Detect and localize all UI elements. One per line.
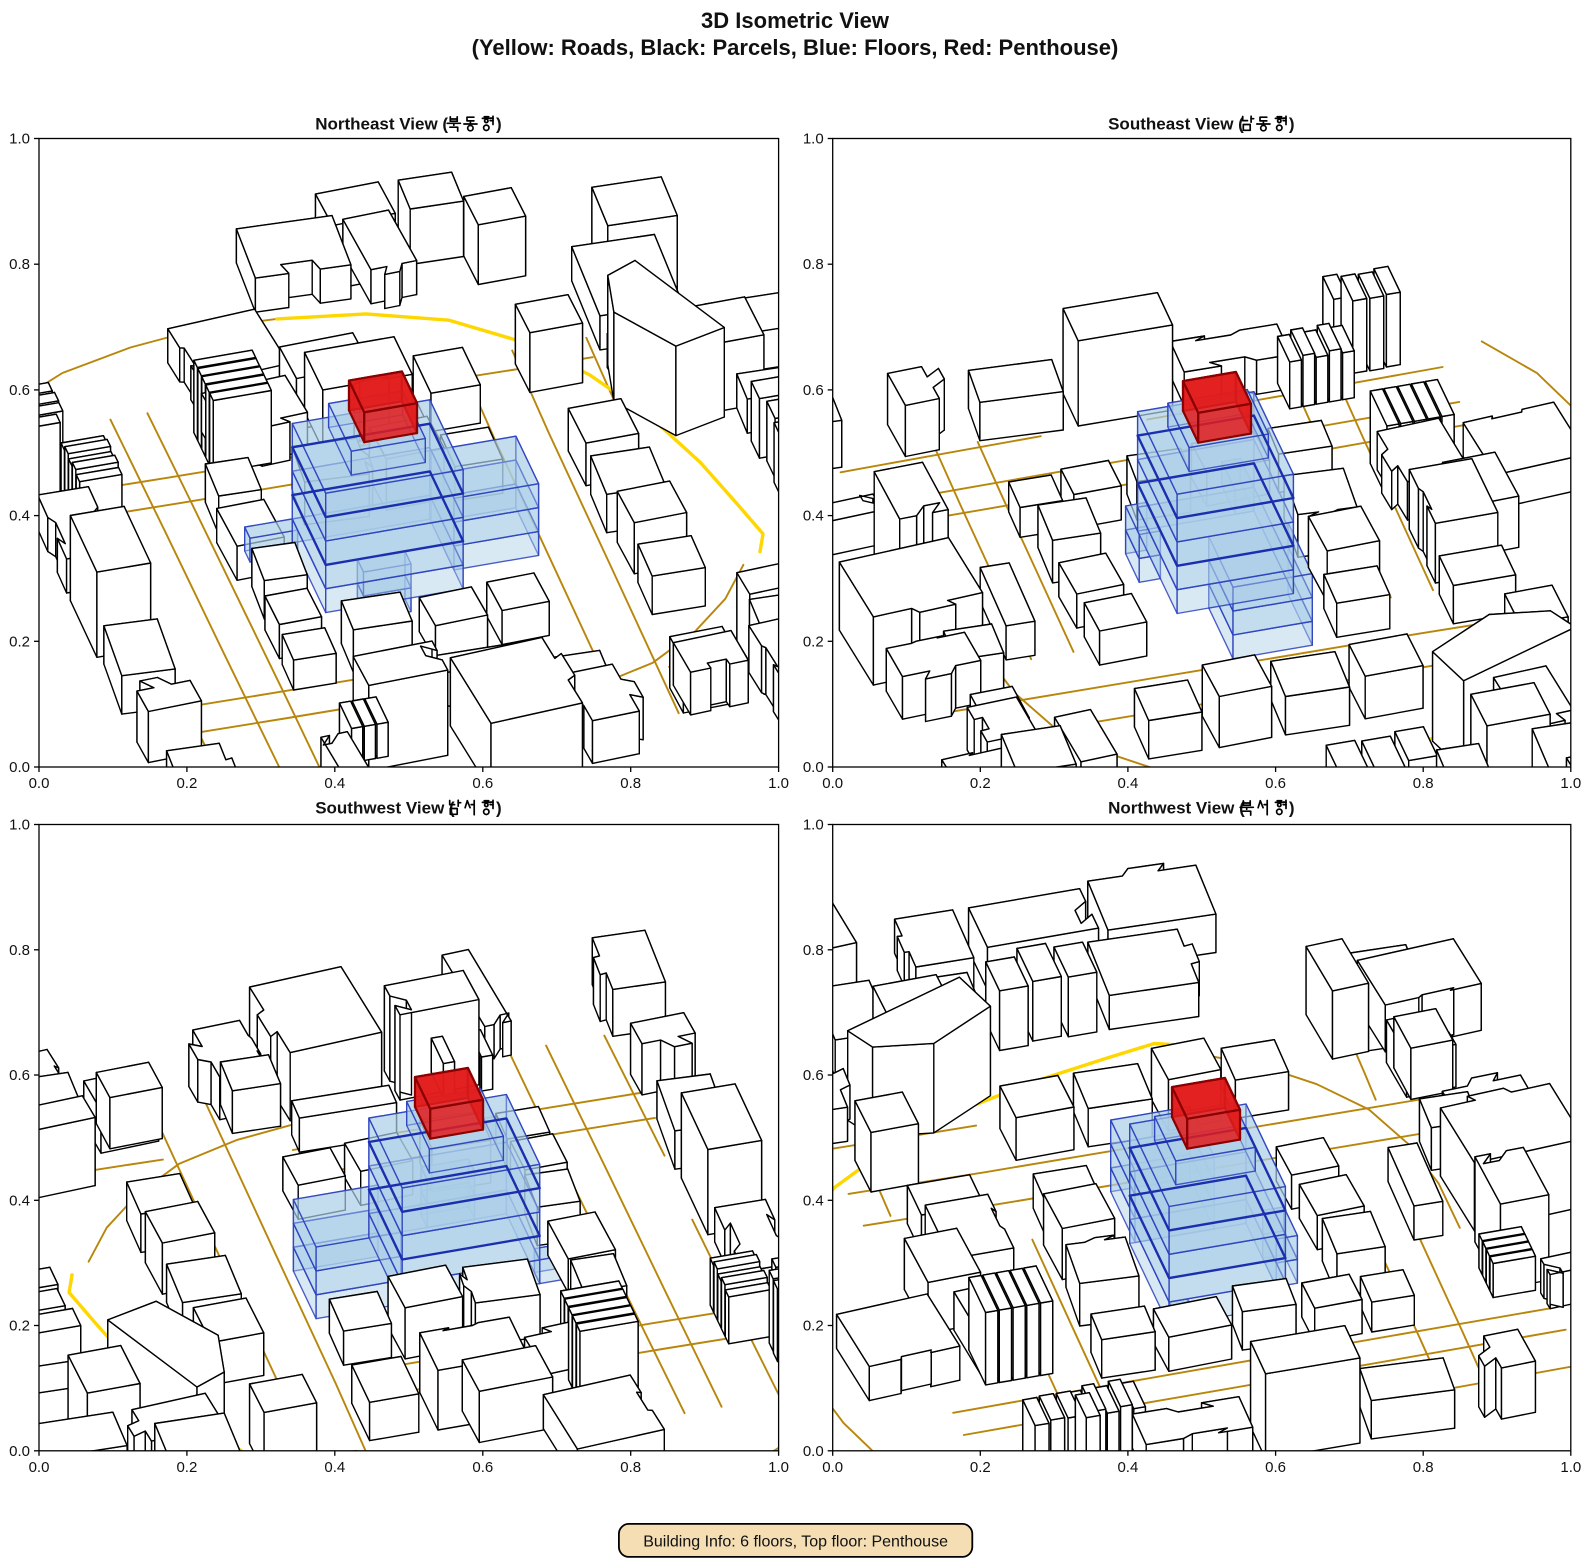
svg-text:Northeast View (: Northeast View ( [315, 115, 448, 134]
svg-text:0.8: 0.8 [9, 942, 30, 959]
svg-text:0.4: 0.4 [803, 1192, 824, 1209]
svg-text:0.4: 0.4 [1117, 775, 1138, 792]
svg-text:0.6: 0.6 [803, 382, 824, 399]
svg-text:0.6: 0.6 [472, 775, 493, 792]
svg-text:): ) [496, 799, 502, 818]
svg-text:): ) [496, 115, 502, 134]
svg-text:): ) [1289, 115, 1295, 134]
svg-text:1.0: 1.0 [803, 817, 824, 834]
svg-text:1.0: 1.0 [9, 817, 30, 834]
svg-text:0.0: 0.0 [803, 1443, 824, 1460]
svg-text:0.2: 0.2 [176, 775, 197, 792]
svg-text:0.2: 0.2 [970, 775, 991, 792]
svg-text:0.0: 0.0 [803, 759, 824, 776]
svg-text:0.4: 0.4 [324, 775, 345, 792]
svg-text:0.8: 0.8 [9, 256, 30, 273]
svg-text:1.0: 1.0 [768, 775, 789, 792]
svg-text:0.0: 0.0 [9, 1443, 30, 1460]
svg-text:0.4: 0.4 [1117, 1459, 1138, 1476]
svg-text:0.0: 0.0 [822, 1459, 843, 1476]
svg-text:0.2: 0.2 [176, 1459, 197, 1476]
svg-text:0.4: 0.4 [803, 508, 824, 525]
svg-text:0.2: 0.2 [803, 1318, 824, 1335]
svg-text:1.0: 1.0 [9, 131, 30, 148]
svg-text:1.0: 1.0 [1560, 775, 1581, 792]
svg-text:0.2: 0.2 [9, 1318, 30, 1335]
svg-text:Southeast View (: Southeast View ( [1108, 115, 1244, 134]
svg-text:0.0: 0.0 [29, 775, 50, 792]
svg-text:0.8: 0.8 [620, 1459, 641, 1476]
svg-text:Northwest View (: Northwest View ( [1108, 799, 1245, 818]
svg-text:(Yellow: Roads, Black: Parcels: (Yellow: Roads, Black: Parcels, Blue: Fl… [472, 35, 1119, 60]
svg-text:0.6: 0.6 [803, 1067, 824, 1084]
svg-text:0.6: 0.6 [1265, 775, 1286, 792]
svg-text:0.0: 0.0 [822, 775, 843, 792]
svg-text:0.0: 0.0 [9, 759, 30, 776]
svg-text:1.0: 1.0 [803, 131, 824, 148]
svg-text:0.2: 0.2 [803, 633, 824, 650]
svg-text:0.0: 0.0 [29, 1459, 50, 1476]
svg-text:Building Info: 6 floors, Top f: Building Info: 6 floors, Top floor: Pent… [643, 1534, 948, 1551]
svg-text:3D Isometric View: 3D Isometric View [701, 8, 890, 33]
svg-text:0.4: 0.4 [9, 508, 30, 525]
svg-text:1.0: 1.0 [1560, 1459, 1581, 1476]
svg-text:0.4: 0.4 [324, 1459, 345, 1476]
svg-text:0.8: 0.8 [803, 942, 824, 959]
svg-text:0.6: 0.6 [9, 1067, 30, 1084]
svg-text:0.2: 0.2 [970, 1459, 991, 1476]
svg-text:Southwest View (: Southwest View ( [315, 799, 455, 818]
svg-text:0.2: 0.2 [9, 633, 30, 650]
svg-text:0.6: 0.6 [9, 382, 30, 399]
svg-text:): ) [1289, 799, 1295, 818]
svg-text:0.6: 0.6 [472, 1459, 493, 1476]
svg-text:0.8: 0.8 [1413, 775, 1434, 792]
svg-text:0.6: 0.6 [1265, 1459, 1286, 1476]
svg-text:0.8: 0.8 [803, 256, 824, 273]
svg-text:0.8: 0.8 [1413, 1459, 1434, 1476]
svg-text:0.4: 0.4 [9, 1192, 30, 1209]
svg-text:1.0: 1.0 [768, 1459, 789, 1476]
svg-text:0.8: 0.8 [620, 775, 641, 792]
